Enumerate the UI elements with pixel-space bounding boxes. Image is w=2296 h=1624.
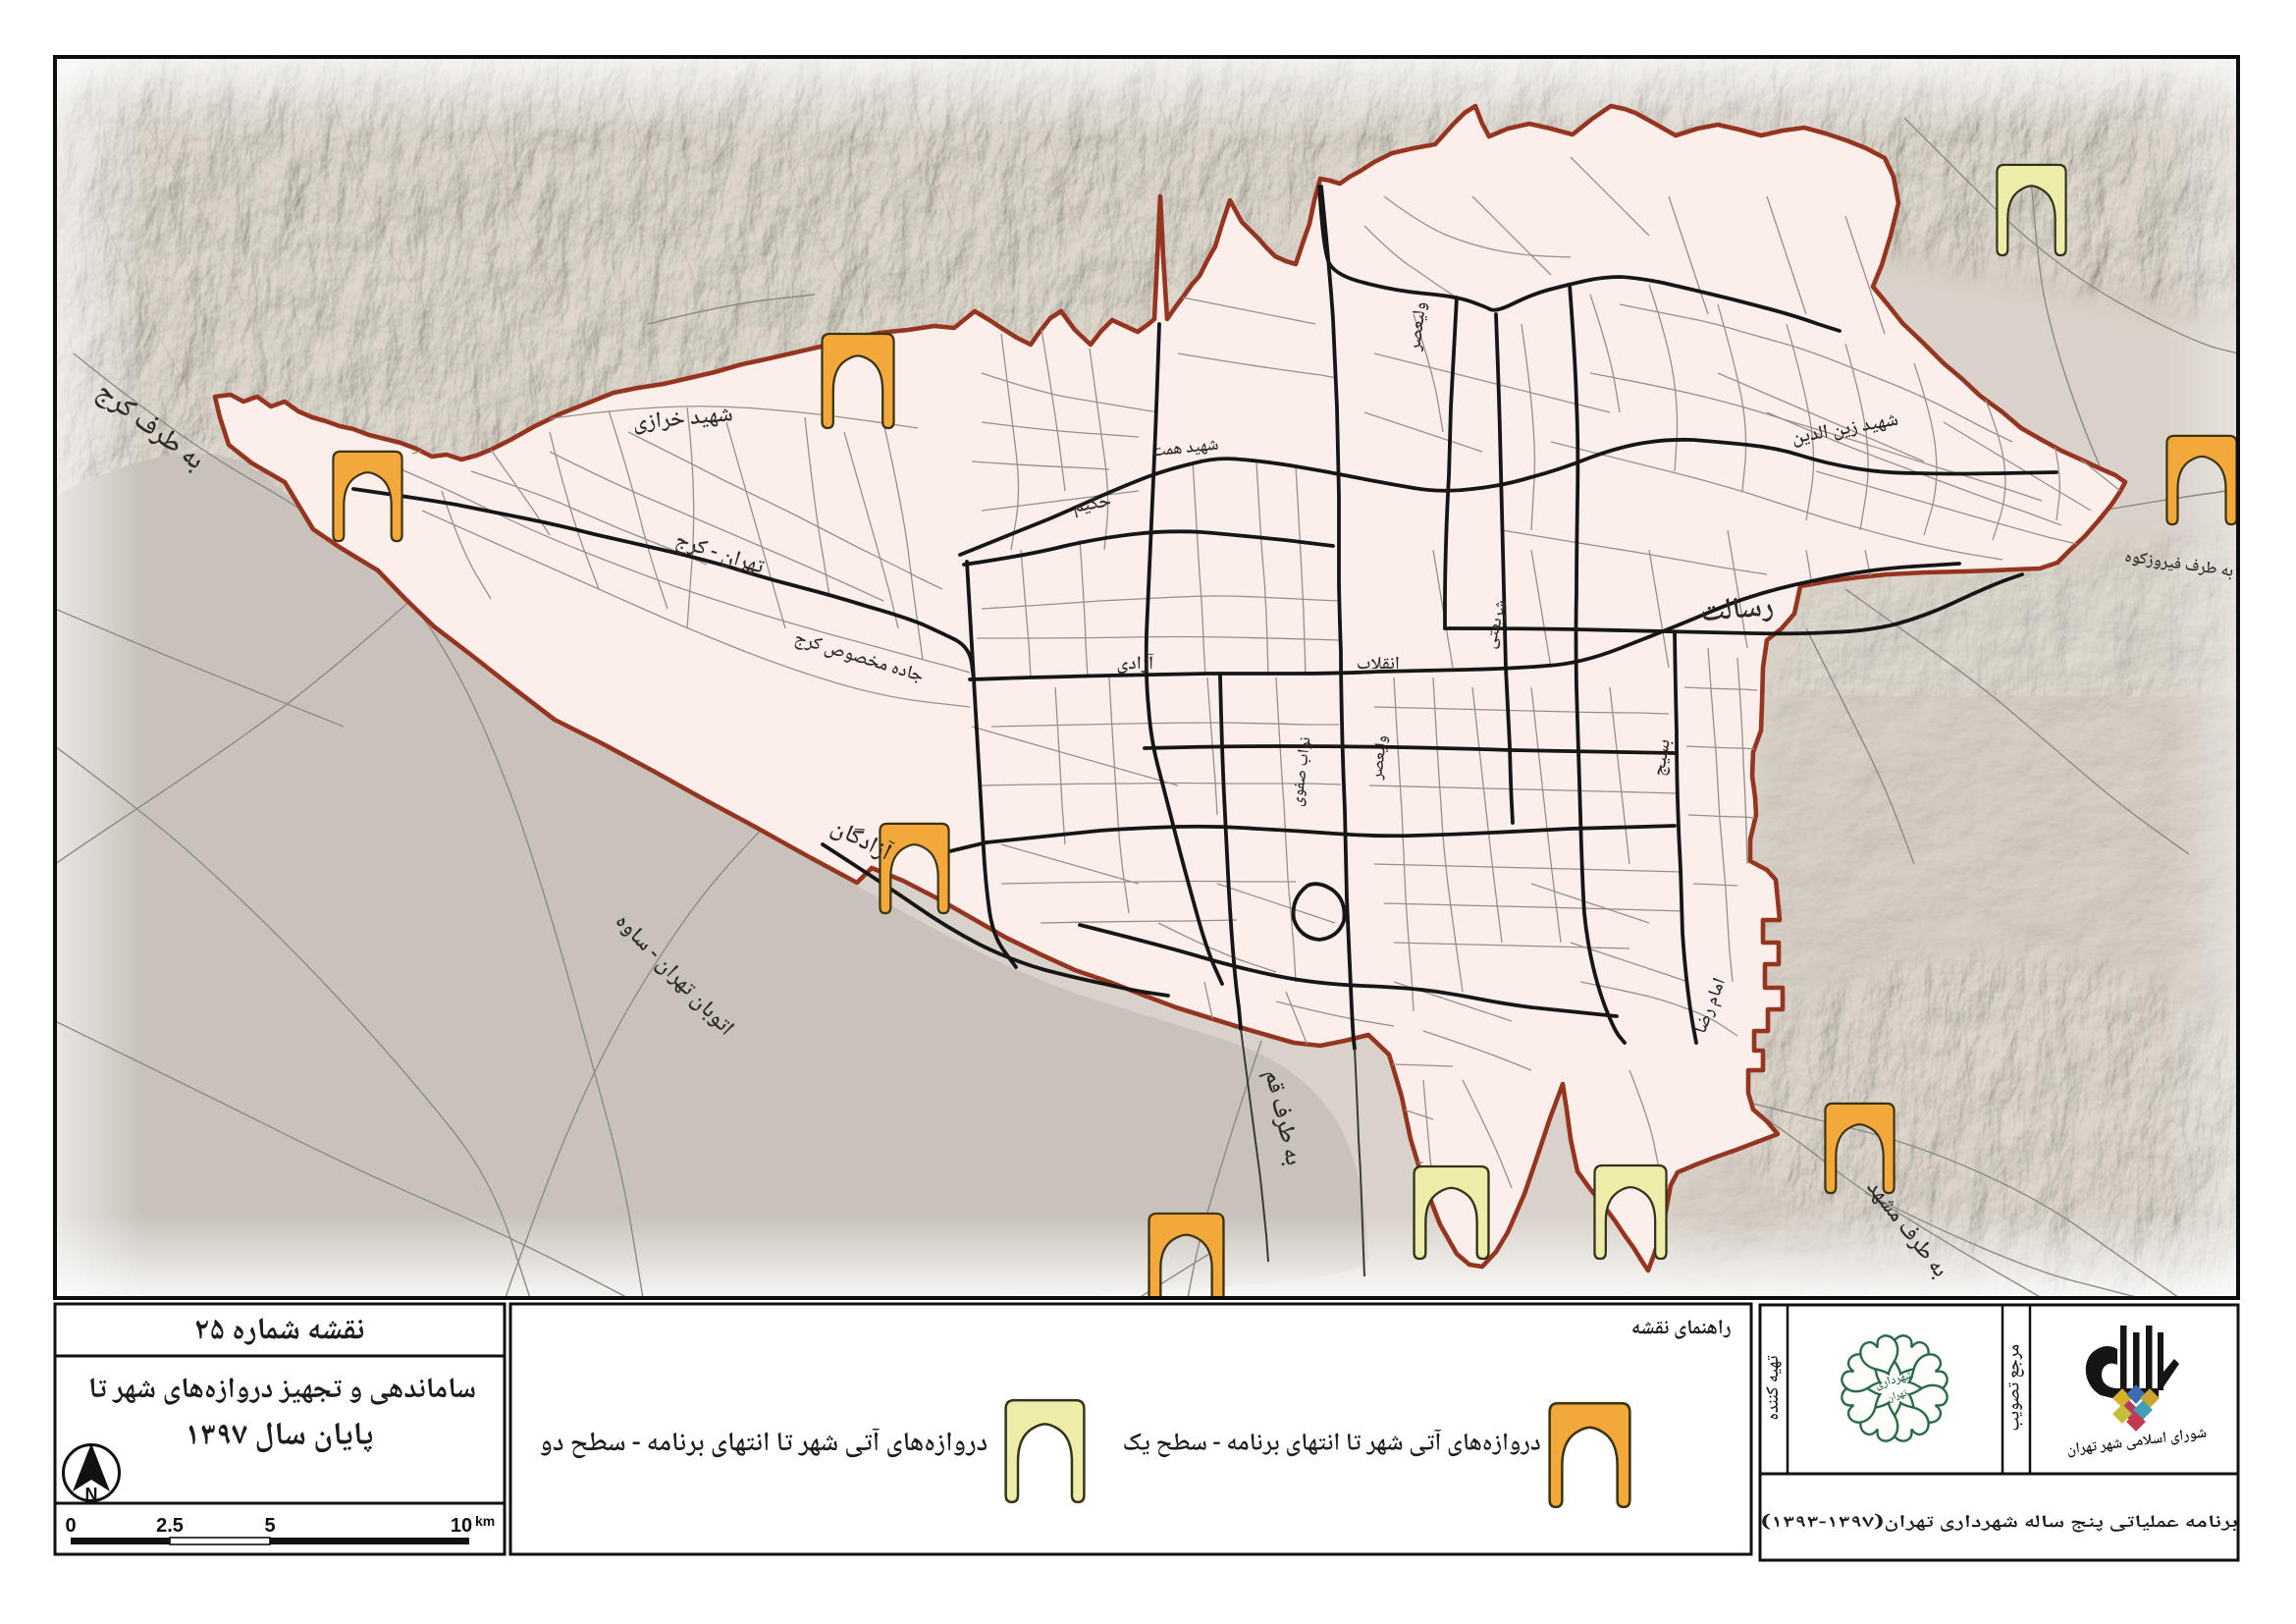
svg-text:0: 0 (65, 1515, 76, 1537)
svg-text:5: 5 (264, 1515, 275, 1537)
svg-text:km: km (475, 1513, 495, 1529)
svg-text:2.5: 2.5 (156, 1515, 184, 1537)
svg-text:10: 10 (451, 1515, 472, 1537)
svg-text:N: N (85, 1485, 98, 1504)
